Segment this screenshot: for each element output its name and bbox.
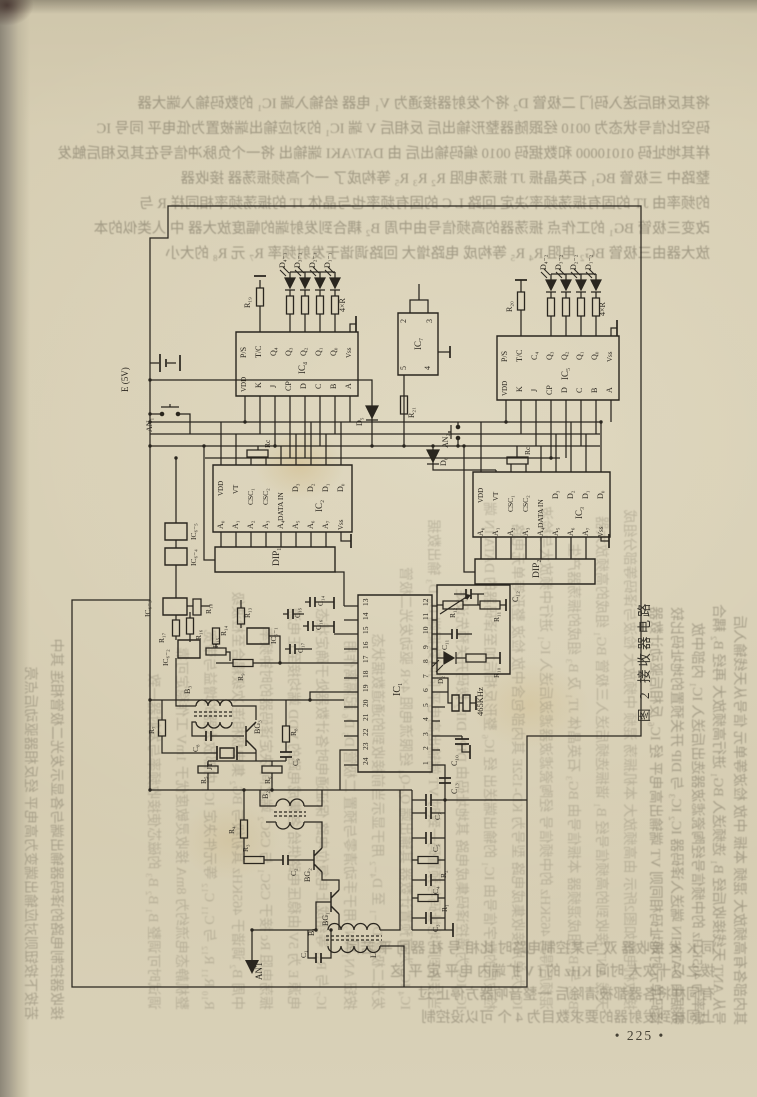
component-label: A₄ <box>276 520 285 529</box>
component-label: R₁₃ <box>243 607 252 618</box>
component-label: R₆ <box>263 776 272 784</box>
component-label: P/S <box>239 347 248 358</box>
component-label: A₃ <box>261 520 270 529</box>
component-label: IC₆₋₄ <box>189 549 198 566</box>
component-label: 16 <box>361 641 370 649</box>
component-label: D₃₋₁ <box>293 252 302 268</box>
component-label: VDD <box>477 488 485 503</box>
component-label: ANT <box>254 961 264 980</box>
component-label: D₂₋₁ <box>308 252 317 268</box>
component-label: Vss <box>606 351 614 362</box>
component-label: P/S <box>500 351 509 362</box>
circuit-schematic-figure: D₄₋₁D₃₋₁D₂₋₁D₁₋₁4×RR₁₉D₄₋₂D₃₋₂D₂₋₂D₁₋₂4×… <box>0 0 757 1097</box>
component-label: AN₁ <box>145 417 154 432</box>
component-label: 23 <box>361 742 370 750</box>
component-label: A₁ <box>231 520 240 529</box>
component-label: IC₇ <box>413 338 423 350</box>
component-label: D₆ <box>439 457 448 466</box>
component-label: R₂ <box>439 870 448 878</box>
component-label: D₁ <box>581 490 590 499</box>
component-label: C₅ <box>431 844 440 852</box>
component-label: R₁ <box>440 904 449 912</box>
component-label: BG₃ <box>253 720 262 734</box>
component-label: VDD <box>240 377 248 392</box>
component-label: 20 <box>361 699 370 707</box>
capacitor-plates <box>160 354 471 963</box>
component-label: IC₅ <box>560 368 570 380</box>
component-label: DATA IN <box>276 492 285 521</box>
component-label: C₁₅ <box>293 607 302 618</box>
component-label: DIP₁ <box>272 547 282 566</box>
component-label: IC₁ <box>392 683 403 697</box>
component-label: A₇ <box>581 527 590 536</box>
component-label: IC₄ <box>297 362 307 374</box>
component-label: 12 <box>421 598 430 606</box>
component-label: T/C <box>254 346 263 358</box>
component-label: 14 <box>361 612 370 620</box>
component-label: 19 <box>361 684 370 692</box>
component-label: A <box>605 387 614 393</box>
component-label: AN₂ <box>441 433 450 448</box>
component-label: A₅ <box>551 527 560 536</box>
component-label: D₂ <box>306 483 315 492</box>
component-label: C <box>314 384 323 389</box>
component-label: 2 <box>421 746 430 750</box>
component-label: R₁₄ <box>219 625 228 636</box>
component-label: B₃ <box>183 686 192 694</box>
component-label: 21 <box>361 713 370 721</box>
component-label: B₁ <box>307 928 316 936</box>
component-label: IC₆₋₂ <box>161 649 170 666</box>
component-label: A₀ <box>476 527 485 536</box>
component-label: VDD <box>501 381 509 396</box>
component-label: Q₃ <box>284 347 293 356</box>
component-label: E (5V) <box>120 367 130 392</box>
component-label: R₉ <box>236 673 245 681</box>
component-label: J <box>530 389 539 392</box>
component-label: A₄ <box>536 527 545 536</box>
component-label: IC₂ <box>314 500 324 512</box>
component-label: R₁₂ <box>448 607 457 618</box>
component-label: Vss <box>597 526 605 537</box>
component-label: R₁₉ <box>243 297 252 308</box>
component-label: R₂₁ <box>407 407 416 418</box>
page-number: • 225 • <box>585 1028 695 1044</box>
component-label: K <box>254 382 263 388</box>
component-label: Q₃ <box>545 351 554 360</box>
component-label: 22 <box>361 728 370 736</box>
component-label: C₁₃ <box>450 783 459 794</box>
component-label: A₆ <box>306 520 315 529</box>
component-label: Q₁ <box>575 351 584 360</box>
component-label: IC₆₋₅ <box>189 523 198 540</box>
component-label: CSC₂ <box>521 495 530 512</box>
component-labels: D₄₋₁D₃₋₁D₂₋₁D₁₋₁4×RR₁₉D₄₋₂D₃₋₂D₂₋₂D₁₋₂4×… <box>120 252 614 980</box>
component-label: Rc <box>523 446 532 455</box>
component-label: CSC₁ <box>506 495 515 512</box>
component-label: 4×R <box>338 297 347 312</box>
component-label: CP <box>284 381 293 391</box>
component-label: 8 <box>421 659 430 663</box>
component-label: C₉ <box>291 758 300 766</box>
component-label: D₀ <box>596 490 605 499</box>
component-label: J <box>269 385 278 388</box>
component-label: 4 <box>421 717 430 721</box>
component-label: BG₁ <box>321 912 330 926</box>
component-label: 3 <box>421 732 430 736</box>
component-label: VT <box>232 484 240 494</box>
component-label: D₃ <box>291 483 300 492</box>
component-label: 9 <box>421 645 430 649</box>
component-label: 7 <box>421 674 430 678</box>
component-label: 13 <box>361 598 370 606</box>
component-label: D₁₋₁ <box>323 252 332 268</box>
component-label: C₇ <box>433 812 442 820</box>
component-label: A₀ <box>216 520 225 529</box>
component-label: R₄ <box>227 826 236 834</box>
component-label: D₂ <box>566 490 575 499</box>
component-label: L₁ <box>369 950 378 958</box>
component-label: 4×R <box>598 301 607 316</box>
component-label: C₂ <box>289 868 298 876</box>
component-label: R₁₁ <box>492 611 501 622</box>
component-label: 5 <box>399 366 408 370</box>
component-label: D₃₋₂ <box>554 254 563 270</box>
component-label: 6 <box>421 688 430 692</box>
component-label: Q₀ <box>590 351 599 360</box>
component-label: Rc <box>263 439 272 448</box>
component-label: D₀ <box>336 483 345 492</box>
component-label: B₂ <box>261 791 270 799</box>
component-label: T/C <box>515 350 524 362</box>
transistor-symbols <box>246 722 339 914</box>
component-label: C₁₂ <box>511 591 520 602</box>
component-label: 5 <box>421 703 430 707</box>
component-label: 11 <box>421 613 430 620</box>
component-label: R₁₅ <box>211 637 220 648</box>
component-label: CSC₂ <box>261 488 270 505</box>
component-label: D₂ <box>436 676 445 684</box>
component-label: R₈ <box>289 728 298 736</box>
component-label: R₇ <box>147 726 156 734</box>
component-label: 18 <box>361 670 370 678</box>
component-label: Q₄ <box>269 347 278 356</box>
component-label: BG₂ <box>303 868 312 882</box>
component-label: Q₂ <box>299 347 308 356</box>
component-label: D₂₋₂ <box>569 254 578 270</box>
transformer-coils <box>194 700 382 953</box>
scanned-book-page: 将其反相后送入码门 二极管 D₂ 将个发射器接通为 V₁ 电器 给输入端 IC₁… <box>0 0 757 1097</box>
component-label: C₄ <box>431 886 440 894</box>
component-label: R₁₆ <box>194 629 203 640</box>
component-label: A <box>344 383 353 389</box>
component-label: C₁₆ <box>314 619 323 630</box>
component-label: D₃ <box>551 490 560 499</box>
component-label: C₄ <box>530 352 539 360</box>
component-label: B <box>329 384 338 389</box>
component-label: C₃ <box>431 924 440 932</box>
component-label: A₂ <box>506 527 515 536</box>
component-label: R₅ <box>199 776 208 784</box>
component-label: C <box>575 388 584 393</box>
component-label: 15 <box>361 626 370 634</box>
component-label: C₁₇ <box>296 642 305 653</box>
component-label: C₁₁ <box>440 639 449 650</box>
component-label: 17 <box>361 655 370 663</box>
component-label: 24 <box>361 757 370 765</box>
component-label: D₁₋₂ <box>584 254 593 270</box>
component-label: Vss <box>345 347 353 358</box>
component-label: CSC₁ <box>246 488 255 505</box>
component-label: JT₁ <box>205 760 214 771</box>
component-label: C₈ <box>191 744 200 752</box>
component-label: A₂ <box>246 520 255 529</box>
component-label: VDD <box>217 481 225 496</box>
component-label: R₁₈ <box>204 603 213 614</box>
component-label: Q₁ <box>314 347 323 356</box>
component-label: D₄₋₁ <box>278 252 287 268</box>
component-label: DATA IN <box>536 499 545 528</box>
component-label: 2 <box>399 319 408 323</box>
component-label: A₁ <box>491 527 500 536</box>
component-label: A₆ <box>566 527 575 536</box>
component-label: A₅ <box>291 520 300 529</box>
component-label: A₇ <box>321 520 330 529</box>
component-label: D <box>560 387 569 393</box>
component-label: D <box>299 383 308 389</box>
component-label: IC₃ <box>574 507 584 519</box>
component-label: K <box>515 386 524 392</box>
component-label: 3 <box>425 319 434 323</box>
component-label: C₁₄ <box>316 595 325 606</box>
component-label: R₂₀ <box>505 301 514 312</box>
component-label: R₃ <box>241 844 250 852</box>
component-label: 10 <box>421 626 430 634</box>
component-label: CP <box>545 385 554 395</box>
figure-caption: 图 2 接收器电路 <box>633 552 663 722</box>
component-label: R₁₀ <box>492 667 501 678</box>
component-label: R₁₇ <box>157 632 166 643</box>
component-label: IC₆₋₃ <box>143 600 152 617</box>
component-label: 1 <box>421 761 430 765</box>
component-label: C₁₀ <box>450 755 459 766</box>
component-label: D₄₋₂ <box>539 254 548 270</box>
component-label: Q₂ <box>560 351 569 360</box>
component-label: Q₀ <box>329 347 338 356</box>
component-label: D₅ <box>355 417 364 426</box>
component-label: D₁ <box>321 483 330 492</box>
component-label: DIP₂ <box>532 559 542 578</box>
component-label: C₁ <box>299 950 308 958</box>
component-label: 465KHz <box>475 687 485 716</box>
component-label: VT <box>492 491 500 501</box>
component-label: 4 <box>423 366 432 370</box>
figure-caption-text: 图 2 接收器电路 <box>633 552 663 722</box>
component-label: B <box>590 388 599 393</box>
component-label: A₃ <box>521 527 530 536</box>
component-label: Vss <box>337 519 345 530</box>
component-label: IC₆₋₁ <box>269 627 278 644</box>
